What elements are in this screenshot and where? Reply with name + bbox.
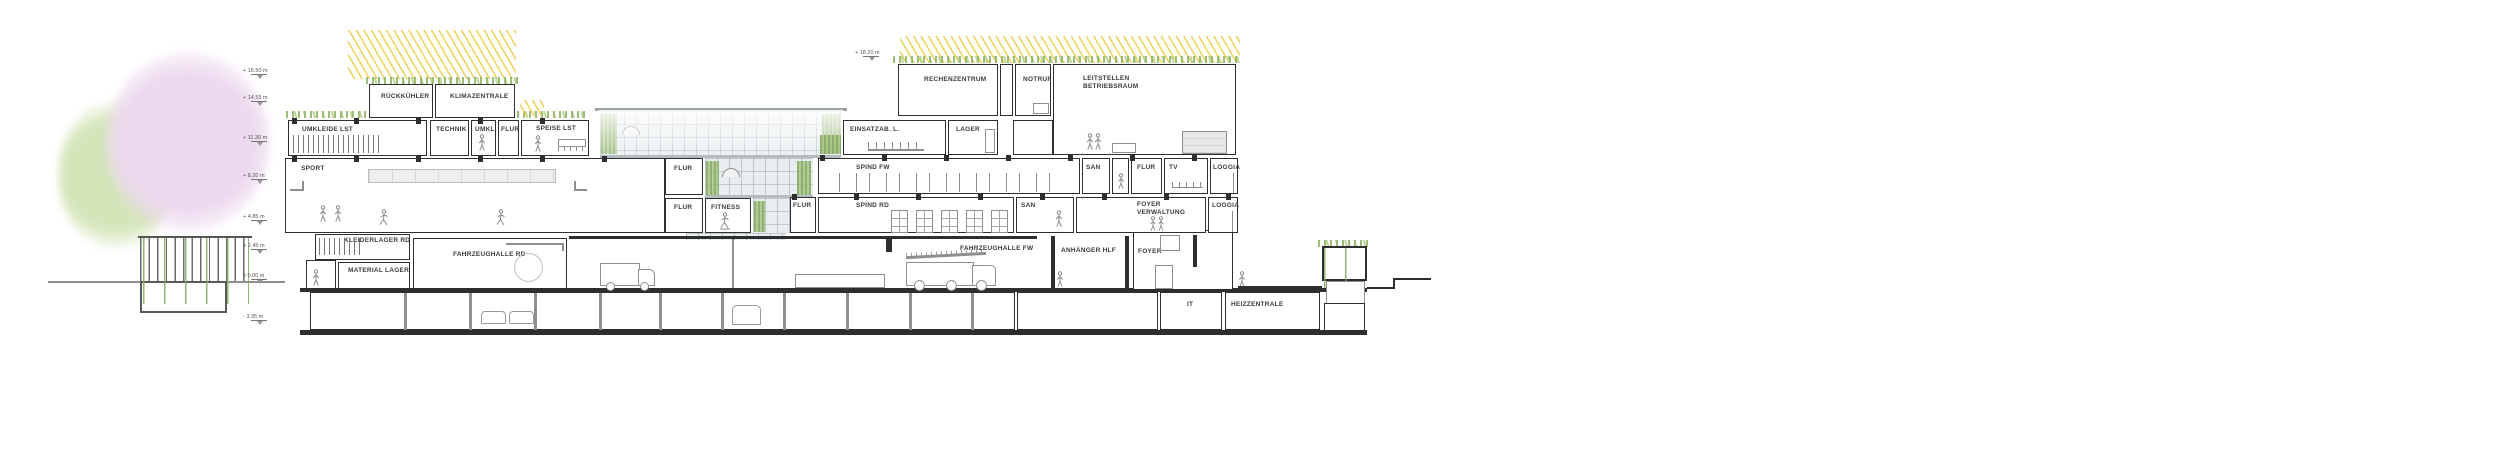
person-figure: [1149, 216, 1157, 237]
divider-curtain: [368, 169, 556, 183]
elevation-label: - 3.35 m: [243, 314, 263, 320]
green-wall: [797, 161, 811, 195]
room-label: FLUR: [501, 126, 519, 134]
person-figure: [1117, 173, 1125, 195]
room-label: EINSATZAB. L.: [850, 126, 899, 134]
room-foyer-verwaltung: FOYER VERWALTUNG: [1076, 197, 1206, 233]
garage-column: [971, 293, 974, 331]
person-figure-runner: [496, 209, 506, 232]
room-open-level2: [1013, 120, 1053, 155]
room-label: RÜCKKÜHLER: [381, 93, 429, 101]
room-loggia-fw: LOGGIA: [1210, 158, 1238, 194]
elevation-marker: + 11.30 m: [243, 135, 267, 146]
room-label: NOTRUF: [1023, 76, 1052, 84]
van-wheel: [640, 282, 649, 291]
room-label: HEIZZENTRALE: [1231, 301, 1283, 309]
green-wall: [706, 161, 719, 195]
hall-wall: [1051, 236, 1055, 290]
garage-column: [469, 293, 472, 331]
glass-locker: [966, 210, 983, 233]
room-material-lager: MATERIAL LAGER: [338, 262, 410, 290]
truck-wheel: [946, 280, 957, 291]
room-label: SPORT: [301, 165, 325, 173]
room-label: LOGGIA: [1213, 164, 1240, 172]
room-rechenzentrum: RECHENZENTRUM: [898, 64, 998, 116]
room-label: FAHRZEUGHALLE FW: [960, 245, 1033, 253]
tree-green-small: [70, 200, 140, 270]
room-label-line1: FOYER: [1137, 201, 1161, 209]
room-notruf: NOTRUF: [1015, 64, 1051, 116]
parked-car: [481, 311, 506, 324]
elevation-label: + 8.20 m: [243, 173, 265, 179]
shelf: [985, 129, 995, 153]
chairs-row: [868, 142, 924, 151]
door-track: [506, 243, 564, 245]
chairs: [558, 147, 584, 151]
room-fitness: FITNESS: [705, 198, 751, 233]
room-it: IT: [1160, 292, 1222, 330]
room-label: LOGGIA: [1212, 202, 1239, 210]
ground-line-right1: [1238, 286, 1322, 288]
shaft-mid: [1326, 281, 1365, 304]
elevation-marker: + 16.50 m: [243, 68, 268, 79]
person-figure: [1157, 216, 1165, 237]
glass-locker: [891, 210, 908, 233]
room-einsatzab: EINSATZAB. L.: [843, 120, 946, 155]
person-figure: [319, 203, 327, 230]
room-flur-rd: FLUR: [790, 197, 816, 233]
railing: [1233, 173, 1234, 193]
person-figure-runner: [379, 209, 389, 232]
room-heizzentrale: HEIZZENTRALE: [1225, 292, 1320, 330]
hall-ceiling: [569, 236, 1037, 239]
garage-column: [783, 293, 786, 331]
ground-line-right3: [1393, 278, 1431, 280]
elevation-marker: + 2.45 m: [243, 243, 267, 254]
room-label: FLUR: [1137, 164, 1155, 172]
room-label: TECHNIK: [436, 126, 467, 134]
person-figure: [1056, 271, 1064, 293]
room-label-line2: BETRIEBSRAUM: [1083, 83, 1138, 91]
room-label: RECHENZENTRUM: [924, 76, 986, 84]
green-roof-tower: [366, 77, 518, 84]
room-label: MATERIAL LAGER: [348, 267, 409, 275]
room-flur-og2: FLUR: [498, 120, 519, 156]
room-label: KLIMAZENTRALE: [450, 93, 509, 101]
van-wheel: [606, 282, 615, 291]
ground-line-left: [48, 281, 140, 283]
table: [558, 139, 586, 147]
garage-column: [659, 293, 662, 331]
elevation-label: + 2.45 m: [243, 243, 265, 249]
elevation-marker: + 14.55 m: [243, 95, 268, 106]
room-label: SPIND RD: [856, 202, 889, 210]
room-label: SPEISE LST: [536, 125, 576, 133]
stair-box: [1155, 265, 1173, 289]
glass-locker: [941, 210, 958, 233]
garage-column: [909, 293, 912, 331]
elevation-label: + 4.85 m: [243, 214, 265, 220]
truck-wheel: [914, 280, 925, 291]
elevation-marker: ± 0.00 m: [243, 273, 267, 284]
elevation-marker: - 3.35 m: [243, 314, 267, 325]
hall-wall: [1125, 236, 1129, 290]
cabinet: [1112, 143, 1136, 153]
room-flur-lower: FLUR: [665, 198, 703, 233]
green-wall: [601, 114, 617, 154]
room-label: SAN: [1086, 164, 1100, 172]
truck-wheel: [976, 280, 987, 291]
green-roof-right: [893, 56, 1240, 63]
room-label: ANHÄNGER HLF: [1061, 247, 1116, 255]
locker-row: [839, 173, 1061, 192]
basketball-hoop-right-pole: [574, 181, 576, 191]
room-sport: SPORT: [285, 158, 665, 233]
room-label: UMKLEIDE LST: [302, 126, 353, 134]
hall-column: [732, 239, 734, 288]
door-track-hook: [562, 243, 564, 251]
person-figure: [534, 135, 542, 158]
room-label: FITNESS: [711, 204, 740, 212]
slab-ticks: [292, 118, 587, 124]
room-label: FAHRZEUGHALLE RD: [453, 251, 526, 259]
elevation-label: + 18.20 m: [855, 50, 880, 56]
room-label: SPIND FW: [856, 164, 890, 172]
sun-rays-small: [520, 100, 544, 116]
room-technik: TECHNIK: [430, 120, 469, 156]
garage-column: [721, 293, 724, 331]
room-label: LAGER: [956, 126, 980, 134]
elevation-marker-roof: + 18.20 m: [855, 50, 880, 61]
green-wall: [754, 201, 765, 232]
person-figure: [478, 134, 486, 157]
room-tv: TV: [1164, 158, 1208, 194]
room-san-fw: SAN: [1082, 158, 1110, 194]
room-umkl: UMKL.: [471, 120, 496, 156]
slab-ticks: [820, 155, 1236, 161]
desk: [1033, 103, 1049, 114]
parked-car: [509, 311, 534, 324]
person-figure-shower: [1055, 210, 1063, 233]
basement-cell: [1017, 292, 1158, 330]
shaft-stair: [1112, 158, 1129, 194]
garage-column: [846, 293, 849, 331]
room-umkleide-lst: UMKLEIDE LST: [288, 120, 427, 156]
garage-column: [599, 293, 602, 331]
room-label: UMKL.: [475, 126, 497, 134]
shelving-hatch: [319, 238, 363, 255]
glass-locker: [991, 210, 1008, 233]
room-label: FLUR: [674, 204, 692, 212]
room-label-line1: LEITSTELLEN: [1083, 75, 1129, 83]
elevation-label: + 14.55 m: [243, 95, 268, 101]
elevation-marker: + 8.20 m: [243, 173, 267, 184]
green-roof-deck-left: [286, 111, 366, 118]
room-label: FLUR: [674, 165, 692, 173]
basketball-hoop-left-pole: [302, 181, 304, 191]
elevation-label: + 11.30 m: [243, 135, 267, 141]
hall-downstand: [886, 236, 892, 252]
stair-box: [1160, 235, 1180, 251]
slab-ticks: [292, 156, 662, 162]
shelving: [1182, 131, 1227, 154]
room-stair-left: [306, 260, 336, 290]
person-figure: [1094, 133, 1102, 156]
garage-column: [404, 293, 407, 331]
foundation-slab: [300, 330, 1367, 335]
room-flur-fw: FLUR: [1131, 158, 1162, 194]
slab-ticks: [792, 194, 1236, 200]
person-figure-treadmill: [720, 212, 730, 235]
glass-locker: [916, 210, 933, 233]
elevation-label: ± 0.00 m: [243, 273, 264, 279]
room-klimazentrale: KLIMAZENTRALE: [435, 84, 515, 118]
room-rueckkuehler: RÜCKKÜHLER: [369, 84, 433, 118]
lift-platform: [795, 274, 885, 288]
underground-garage: [310, 292, 1015, 330]
elevation-marker: + 4.85 m: [243, 214, 267, 225]
basketball-hoop-right: [574, 189, 587, 191]
sofa-row: [1172, 182, 1203, 188]
elevation-label: + 16.50 m: [243, 68, 268, 74]
person-figure: [1086, 133, 1094, 156]
room-fahrzeughalle-rd: FAHRZEUGHALLE RD: [413, 238, 567, 291]
room-label: TV: [1169, 164, 1178, 172]
room-speise-lst: SPEISE LST: [521, 120, 589, 156]
room-spind-rd: SPIND RD: [818, 197, 1014, 233]
person-figure: [1238, 271, 1246, 293]
room-spind-fw: SPIND FW: [818, 158, 1080, 194]
room-label: FOYER: [1138, 248, 1162, 256]
section-drawing: + 16.50 m + 14.55 m + 11.30 m + 8.20 m +…: [0, 0, 2500, 470]
parked-car: [732, 305, 761, 325]
room-lager: LAGER: [948, 120, 998, 155]
room-label: FLUR: [793, 202, 811, 210]
van-body: [600, 263, 640, 286]
pergola-vines: [143, 238, 249, 304]
terrace-planter: [820, 135, 841, 154]
garage-column: [534, 293, 537, 331]
room-flur-upper: FLUR: [665, 158, 703, 195]
room-label: IT: [1187, 301, 1193, 309]
railing: [1232, 211, 1233, 232]
room-san-rd: SAN: [1016, 197, 1074, 233]
foyer-core-wall: [1193, 235, 1197, 267]
sun-rays-left: [348, 30, 516, 79]
room-kleiderlager-rd: KLEIDERLAGER RD: [315, 234, 410, 260]
door-drum: [514, 253, 543, 282]
ground-line-right2: [1367, 287, 1394, 289]
shaft: [1000, 64, 1013, 116]
person-figure: [334, 203, 342, 230]
locker-row: [293, 135, 381, 153]
room-loggia-rd: LOGGIA: [1208, 197, 1238, 233]
room-leitstellen-betriebsraum: LEITSTELLEN BETRIEBSRAUM: [1053, 64, 1236, 155]
room-label: SAN: [1021, 202, 1035, 210]
room-foyer: FOYER: [1133, 230, 1233, 290]
shaft-basement: [1324, 303, 1365, 331]
